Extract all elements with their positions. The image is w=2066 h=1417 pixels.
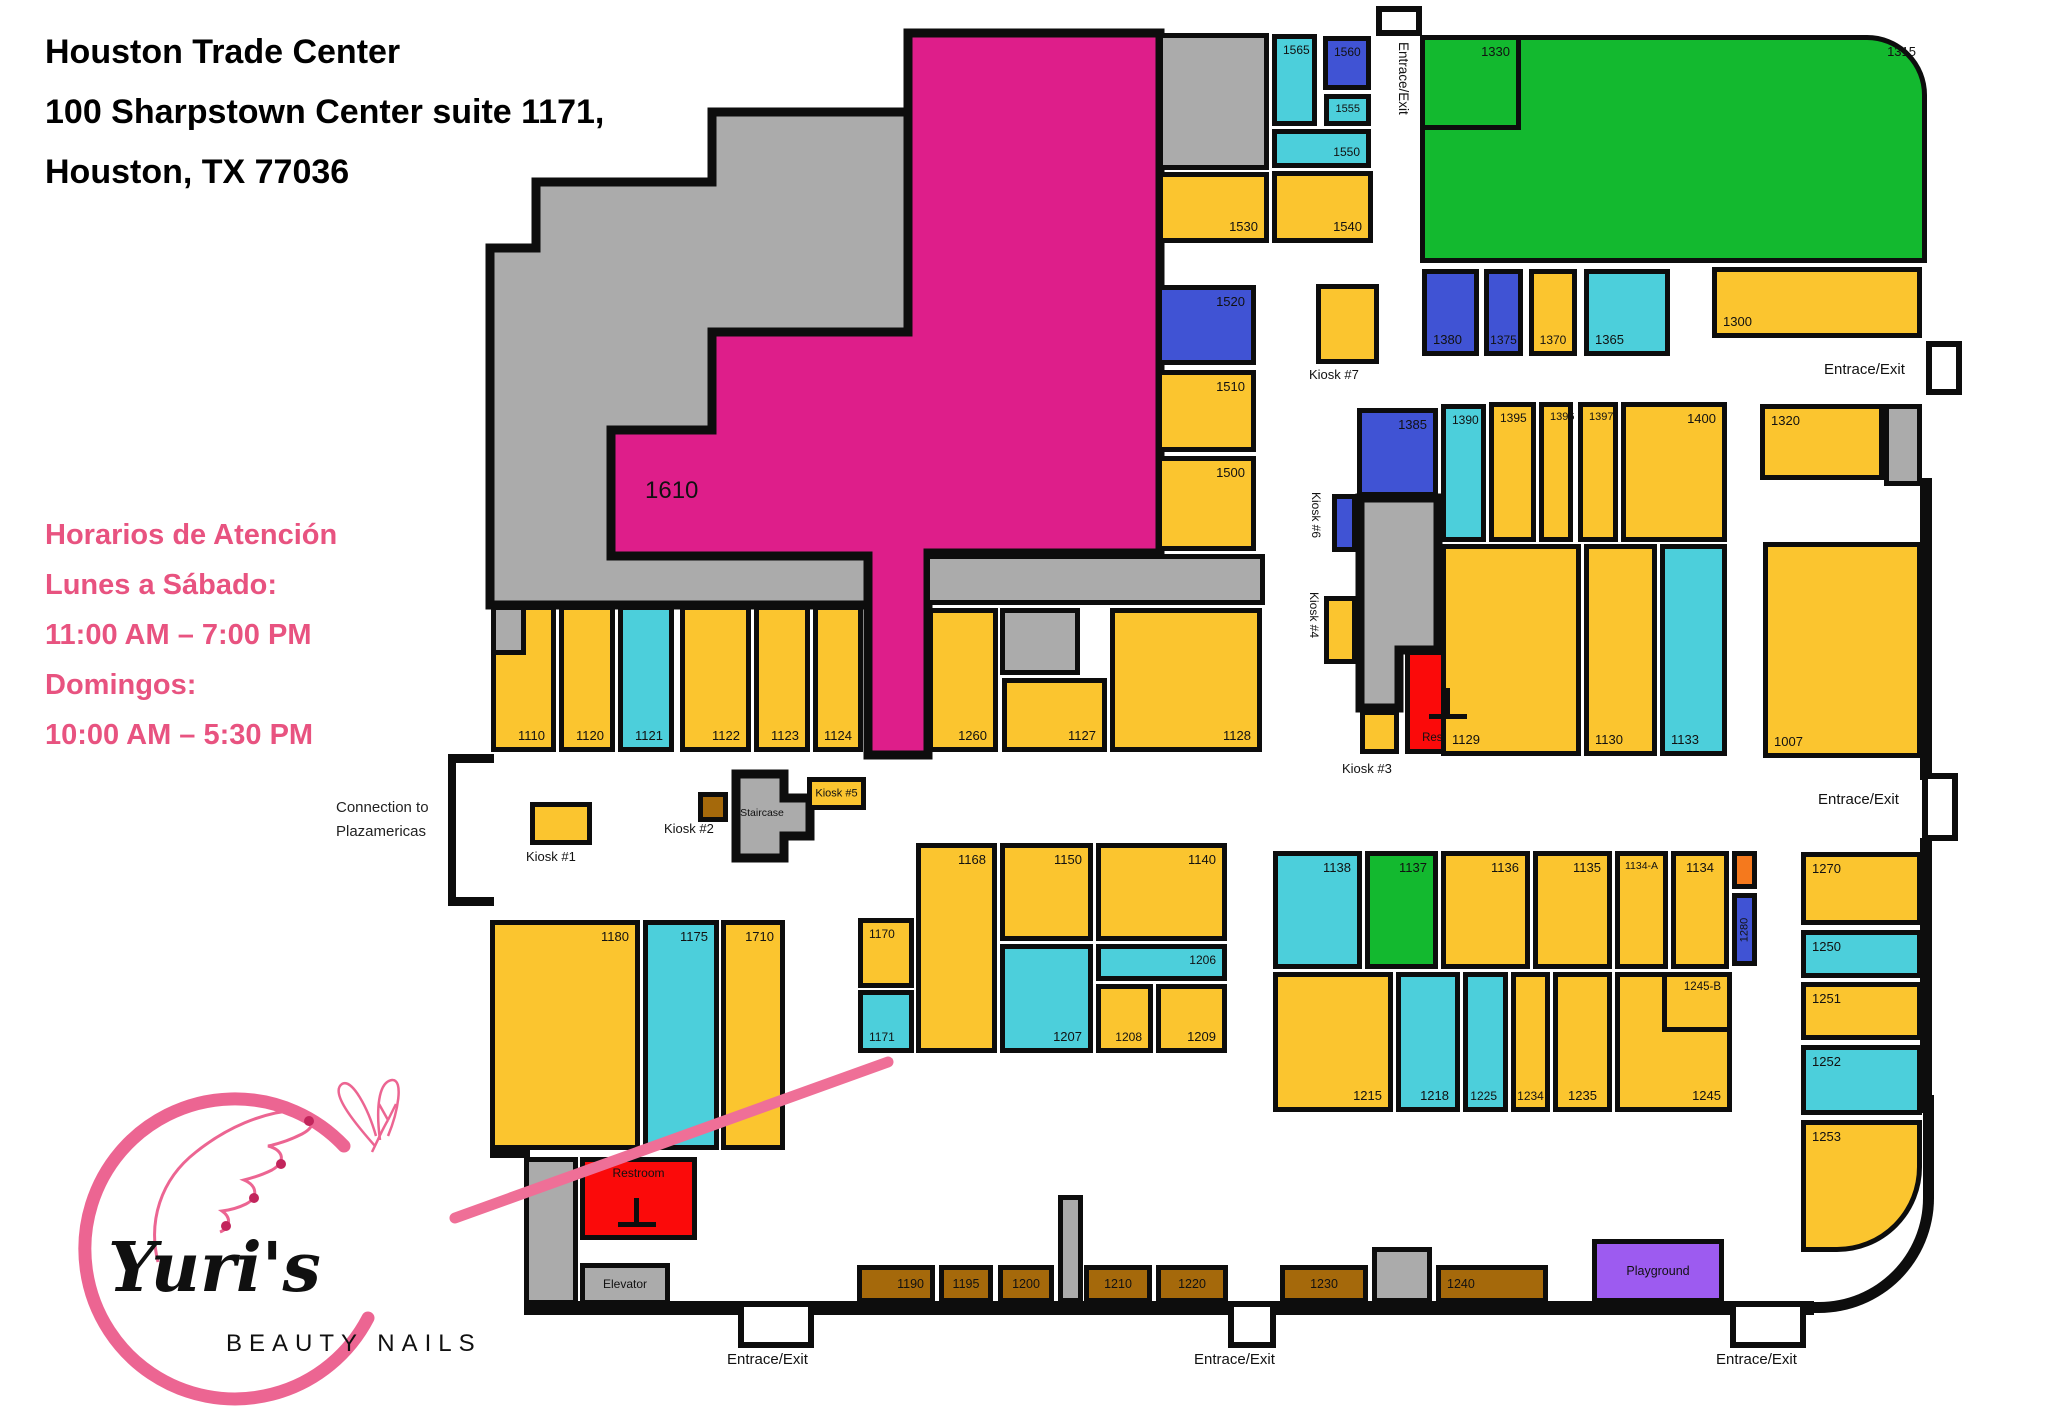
room-label: 1365 bbox=[1595, 333, 1624, 346]
room-label: 1137 bbox=[1399, 861, 1427, 874]
room-label: 1124 bbox=[824, 729, 852, 742]
room-label: 1560 bbox=[1334, 46, 1361, 58]
room-1225: 1225 bbox=[1463, 972, 1508, 1112]
room-1175: 1175 bbox=[643, 920, 719, 1150]
entrance-label-right-upper: Entrace/Exit bbox=[1824, 362, 1905, 379]
room-label: 1320 bbox=[1771, 414, 1800, 427]
room-label: 1260 bbox=[958, 729, 987, 742]
room-1140: 1140 bbox=[1096, 843, 1227, 941]
room-1365: 1365 bbox=[1584, 269, 1670, 356]
wall-curve-bottom-right bbox=[1806, 1095, 1934, 1313]
room-label: 1170 bbox=[869, 928, 895, 940]
hours-line: Lunes a Sábado: bbox=[45, 560, 337, 610]
logo-butterfly bbox=[339, 1080, 399, 1152]
room-1550: 1550 bbox=[1272, 129, 1371, 168]
kiosk-1-box bbox=[530, 802, 592, 845]
room-1130: 1130 bbox=[1584, 544, 1657, 756]
room-1330: 1330 bbox=[1420, 35, 1521, 130]
room-label: 1270 bbox=[1812, 862, 1841, 875]
wall-segment bbox=[524, 1301, 1814, 1315]
room-label: 1280 bbox=[1739, 917, 1750, 941]
room-1135: 1135 bbox=[1533, 851, 1612, 969]
room-1190: 1190 bbox=[857, 1265, 935, 1303]
room-1220: 1220 bbox=[1156, 1265, 1228, 1303]
playground: Playground bbox=[1592, 1239, 1724, 1303]
room-1300: 1300 bbox=[1712, 267, 1922, 338]
room-label: 1245 bbox=[1692, 1089, 1721, 1102]
stores-gray-notch bbox=[491, 605, 526, 655]
label-kiosk-3: Kiosk #3 bbox=[1342, 762, 1392, 776]
room-label: 1127 bbox=[1068, 729, 1096, 742]
wall-segment bbox=[1920, 838, 1932, 1113]
room-1134-A: 1134-A bbox=[1615, 851, 1668, 969]
room-1500: 1500 bbox=[1157, 456, 1256, 551]
room-label: 1400 bbox=[1687, 412, 1716, 425]
room-label: 1175 bbox=[680, 930, 708, 943]
room-1210: 1210 bbox=[1084, 1265, 1152, 1303]
room-1560: 1560 bbox=[1323, 36, 1371, 90]
room-1510: 1510 bbox=[1157, 370, 1256, 452]
room-label: 1190 bbox=[897, 1278, 924, 1291]
room-label: 1206 bbox=[1189, 954, 1216, 966]
wall-segment bbox=[1920, 478, 1932, 780]
room-label: 1375 bbox=[1489, 334, 1518, 346]
wall-segment bbox=[490, 1146, 530, 1158]
room-label: 1380 bbox=[1433, 333, 1462, 346]
room-label: 1225 bbox=[1470, 1090, 1497, 1102]
room-label: 1220 bbox=[1178, 1278, 1206, 1291]
room-label: 1130 bbox=[1595, 733, 1623, 746]
room-1260: 1260 bbox=[928, 608, 998, 752]
room-1710: 1710 bbox=[721, 920, 785, 1150]
room-1280: 1280 bbox=[1732, 893, 1757, 966]
label-kiosk-7: Kiosk #7 bbox=[1309, 368, 1359, 382]
gray-col-1058 bbox=[1058, 1195, 1083, 1303]
room-label: 1136 bbox=[1491, 861, 1519, 874]
title-line-2: 100 Sharpstown Center suite 1171, bbox=[45, 82, 604, 142]
room-1128: 1128 bbox=[1110, 608, 1262, 752]
room-label: 1180 bbox=[601, 930, 629, 943]
room-label: 1397 bbox=[1589, 412, 1613, 423]
room-label: 1245-B bbox=[1684, 982, 1721, 994]
entrance-label-top: Entrace/Exit bbox=[1395, 42, 1410, 115]
room-1240: 1240 bbox=[1436, 1265, 1548, 1303]
room-label: 1171 bbox=[869, 1031, 895, 1043]
room-label: 1540 bbox=[1333, 220, 1362, 233]
door-right-mid bbox=[1922, 773, 1958, 841]
wall-segment bbox=[618, 1222, 656, 1227]
gray-strip-right bbox=[1884, 404, 1922, 486]
room-1133: 1133 bbox=[1660, 544, 1727, 756]
gray-top-block bbox=[1158, 33, 1269, 170]
room-label: 1250 bbox=[1812, 940, 1841, 953]
room-1168: 1168 bbox=[916, 843, 997, 1053]
room-1396: 1396 bbox=[1539, 402, 1573, 542]
room-label: 1110 bbox=[518, 729, 545, 742]
entrance-label-bottom-mid: Entrace/Exit bbox=[1194, 1352, 1275, 1369]
room-label: 1207 bbox=[1053, 1030, 1082, 1043]
room-1137: 1137 bbox=[1365, 851, 1438, 969]
room-1390: 1390 bbox=[1441, 404, 1486, 542]
room-label: 1138 bbox=[1323, 861, 1351, 874]
room-1235: 1235 bbox=[1553, 972, 1612, 1112]
room-label: 1390 bbox=[1452, 414, 1479, 426]
room-label: 1133 bbox=[1671, 733, 1699, 746]
room-label: 1218 bbox=[1420, 1089, 1449, 1102]
kiosk-5-box: Kiosk #5 bbox=[807, 777, 866, 810]
room-1150: 1150 bbox=[1000, 843, 1093, 941]
room-1395: 1395 bbox=[1489, 402, 1536, 542]
label-kiosk-6: Kiosk #6 bbox=[1309, 492, 1322, 538]
room-1270: 1270 bbox=[1801, 852, 1922, 925]
room-1195: 1195 bbox=[939, 1265, 993, 1303]
room-label: 1128 bbox=[1223, 729, 1251, 742]
room-1218: 1218 bbox=[1396, 972, 1460, 1112]
room-label: 1215 bbox=[1353, 1089, 1382, 1102]
room-label: 1385 bbox=[1398, 418, 1427, 431]
room-label: 1129 bbox=[1452, 733, 1480, 746]
kiosk-6-box bbox=[1332, 494, 1357, 552]
door-top bbox=[1376, 6, 1422, 36]
room-label: Playground bbox=[1626, 1265, 1689, 1278]
mall-floor-plan: 1565156015551550153015401520151015001315… bbox=[0, 0, 2066, 1417]
room-label: 1315 bbox=[1887, 45, 1916, 58]
room-label: 1209 bbox=[1187, 1030, 1216, 1043]
room-1540: 1540 bbox=[1272, 171, 1373, 243]
room-label: 1200 bbox=[1012, 1278, 1040, 1291]
room-label: 1234 bbox=[1516, 1090, 1545, 1102]
room-1007: 1007 bbox=[1763, 542, 1922, 758]
map-title-block: Houston Trade Center 100 Sharpstown Cent… bbox=[45, 22, 604, 202]
elevator: Elevator bbox=[580, 1263, 670, 1305]
room-1397: 1397 bbox=[1578, 402, 1618, 542]
room-label: 1208 bbox=[1115, 1031, 1142, 1043]
hours-block: Horarios de Atención Lunes a Sábado: 11:… bbox=[45, 510, 337, 760]
room-label: 1140 bbox=[1188, 853, 1216, 866]
hours-line: 10:00 AM – 5:30 PM bbox=[45, 710, 337, 760]
room-1251: 1251 bbox=[1801, 982, 1922, 1040]
hours-line: 11:00 AM – 7:00 PM bbox=[45, 610, 337, 660]
room-label: Restroom bbox=[585, 1167, 692, 1179]
room-label: 1168 bbox=[958, 853, 986, 866]
door-bottom-right bbox=[1730, 1301, 1806, 1348]
room-1400: 1400 bbox=[1621, 402, 1727, 542]
room-1134: 1134 bbox=[1671, 851, 1729, 969]
label-1610: 1610 bbox=[645, 478, 698, 504]
room-label: 1710 bbox=[745, 930, 774, 943]
title-line-3: Houston, TX 77036 bbox=[45, 142, 604, 202]
room-1565: 1565 bbox=[1272, 34, 1317, 126]
orange-box bbox=[1732, 851, 1757, 889]
room-1370: 1370 bbox=[1529, 269, 1577, 356]
room-label: 1251 bbox=[1812, 992, 1841, 1005]
room-1170: 1170 bbox=[858, 918, 914, 988]
entrance-label-bottom-right: Entrace/Exit bbox=[1716, 1352, 1797, 1369]
room-label: 1210 bbox=[1104, 1278, 1132, 1291]
room-label: 1134-A bbox=[1620, 861, 1663, 872]
room-label: 1230 bbox=[1310, 1278, 1338, 1291]
title-line-1: Houston Trade Center bbox=[45, 22, 604, 82]
door-bottom-left bbox=[738, 1301, 814, 1348]
room-1138: 1138 bbox=[1273, 851, 1362, 969]
kiosk-7-box bbox=[1316, 284, 1379, 364]
label-staircase: Staircase bbox=[712, 808, 812, 820]
room-label: 1195 bbox=[953, 1278, 980, 1291]
room-1215: 1215 bbox=[1273, 972, 1393, 1112]
room-1206: 1206 bbox=[1096, 944, 1227, 981]
hours-title: Horarios de Atención bbox=[45, 510, 337, 560]
room-1136: 1136 bbox=[1441, 851, 1530, 969]
room-label: 1007 bbox=[1774, 735, 1803, 748]
room-label: 1135 bbox=[1573, 861, 1601, 874]
room-label: 1395 bbox=[1500, 412, 1527, 424]
room-1120: 1120 bbox=[559, 605, 615, 752]
room-1530: 1530 bbox=[1158, 172, 1269, 243]
label-kiosk-2: Kiosk #2 bbox=[664, 822, 714, 836]
connection-line-1: Connection to bbox=[336, 796, 429, 820]
entrance-label-bottom-left: Entrace/Exit bbox=[727, 1352, 808, 1369]
room-1127: 1127 bbox=[1002, 678, 1107, 752]
label-kiosk-4: Kiosk #4 bbox=[1307, 592, 1320, 638]
room-1171: 1171 bbox=[858, 990, 914, 1053]
gray-col-bottom bbox=[524, 1157, 578, 1305]
room-1180: 1180 bbox=[490, 920, 640, 1150]
room-1209: 1209 bbox=[1156, 984, 1227, 1053]
room-1380: 1380 bbox=[1422, 269, 1479, 356]
room-label: 1134 bbox=[1676, 861, 1724, 874]
room-1121: 1121 bbox=[618, 605, 674, 752]
room-label: 1123 bbox=[771, 729, 799, 742]
door-right-upper bbox=[1926, 341, 1962, 395]
room-1245-B: 1245-B bbox=[1662, 972, 1732, 1032]
room-1129: 1129 bbox=[1441, 544, 1581, 756]
room-label: Elevator bbox=[603, 1278, 647, 1290]
room-label: 1370 bbox=[1534, 334, 1572, 346]
room-label: 1550 bbox=[1333, 146, 1360, 158]
room-label: 1565 bbox=[1283, 44, 1310, 56]
room-1520: 1520 bbox=[1157, 285, 1256, 365]
kiosk-3-box bbox=[1360, 710, 1399, 754]
room-label: Kiosk #5 bbox=[815, 788, 857, 799]
hours-line: Domingos: bbox=[45, 660, 337, 710]
room-label: 1555 bbox=[1336, 104, 1360, 115]
logo-name: Yuri's bbox=[108, 1228, 321, 1308]
room-label: 1330 bbox=[1481, 45, 1510, 58]
room-label: 1300 bbox=[1723, 315, 1752, 328]
room-1208: 1208 bbox=[1096, 984, 1153, 1053]
room-1230: 1230 bbox=[1280, 1265, 1368, 1303]
room-1250: 1250 bbox=[1801, 930, 1922, 978]
label-kiosk-1: Kiosk #1 bbox=[526, 850, 576, 864]
room-label: 1120 bbox=[576, 729, 604, 742]
room-label: 1530 bbox=[1229, 220, 1258, 233]
kiosk-4-box bbox=[1324, 596, 1357, 664]
connection-line-2: Plazamericas bbox=[336, 820, 429, 844]
logo-nails bbox=[221, 1116, 314, 1231]
room-label: 1252 bbox=[1812, 1055, 1841, 1068]
room-label: 1240 bbox=[1447, 1278, 1475, 1291]
room-1555: 1555 bbox=[1324, 94, 1371, 126]
room-label: 1121 bbox=[635, 729, 663, 742]
connection-label: Connection to Plazamericas bbox=[336, 796, 429, 844]
room-label: 1150 bbox=[1054, 853, 1082, 866]
wall-segment bbox=[1429, 714, 1467, 719]
room-1207: 1207 bbox=[1000, 944, 1093, 1053]
wall-segment bbox=[448, 754, 456, 906]
room-label: 1500 bbox=[1216, 466, 1245, 479]
room-1200: 1200 bbox=[998, 1265, 1054, 1303]
room-1320: 1320 bbox=[1760, 404, 1884, 480]
gray-sq-1127 bbox=[1000, 608, 1080, 675]
door-bottom-mid bbox=[1228, 1301, 1276, 1348]
room-1375: 1375 bbox=[1484, 269, 1523, 356]
gray-strip-mid bbox=[925, 554, 1265, 605]
gray-box-1372 bbox=[1372, 1247, 1432, 1303]
room-label: 1520 bbox=[1216, 295, 1245, 308]
room-label: 1510 bbox=[1216, 380, 1245, 393]
room-1122: 1122 bbox=[680, 605, 751, 752]
room-1123: 1123 bbox=[754, 605, 810, 752]
room-1385: 1385 bbox=[1357, 408, 1438, 497]
room-label: 1235 bbox=[1558, 1089, 1607, 1102]
logo-subtitle: BEAUTY NAILS bbox=[226, 1330, 482, 1358]
entrance-label-right-mid: Entrace/Exit bbox=[1818, 792, 1899, 809]
room-1124: 1124 bbox=[813, 605, 863, 752]
room-1234: 1234 bbox=[1511, 972, 1550, 1112]
room-label: 1396 bbox=[1550, 412, 1574, 423]
room-label: 1122 bbox=[712, 729, 740, 742]
